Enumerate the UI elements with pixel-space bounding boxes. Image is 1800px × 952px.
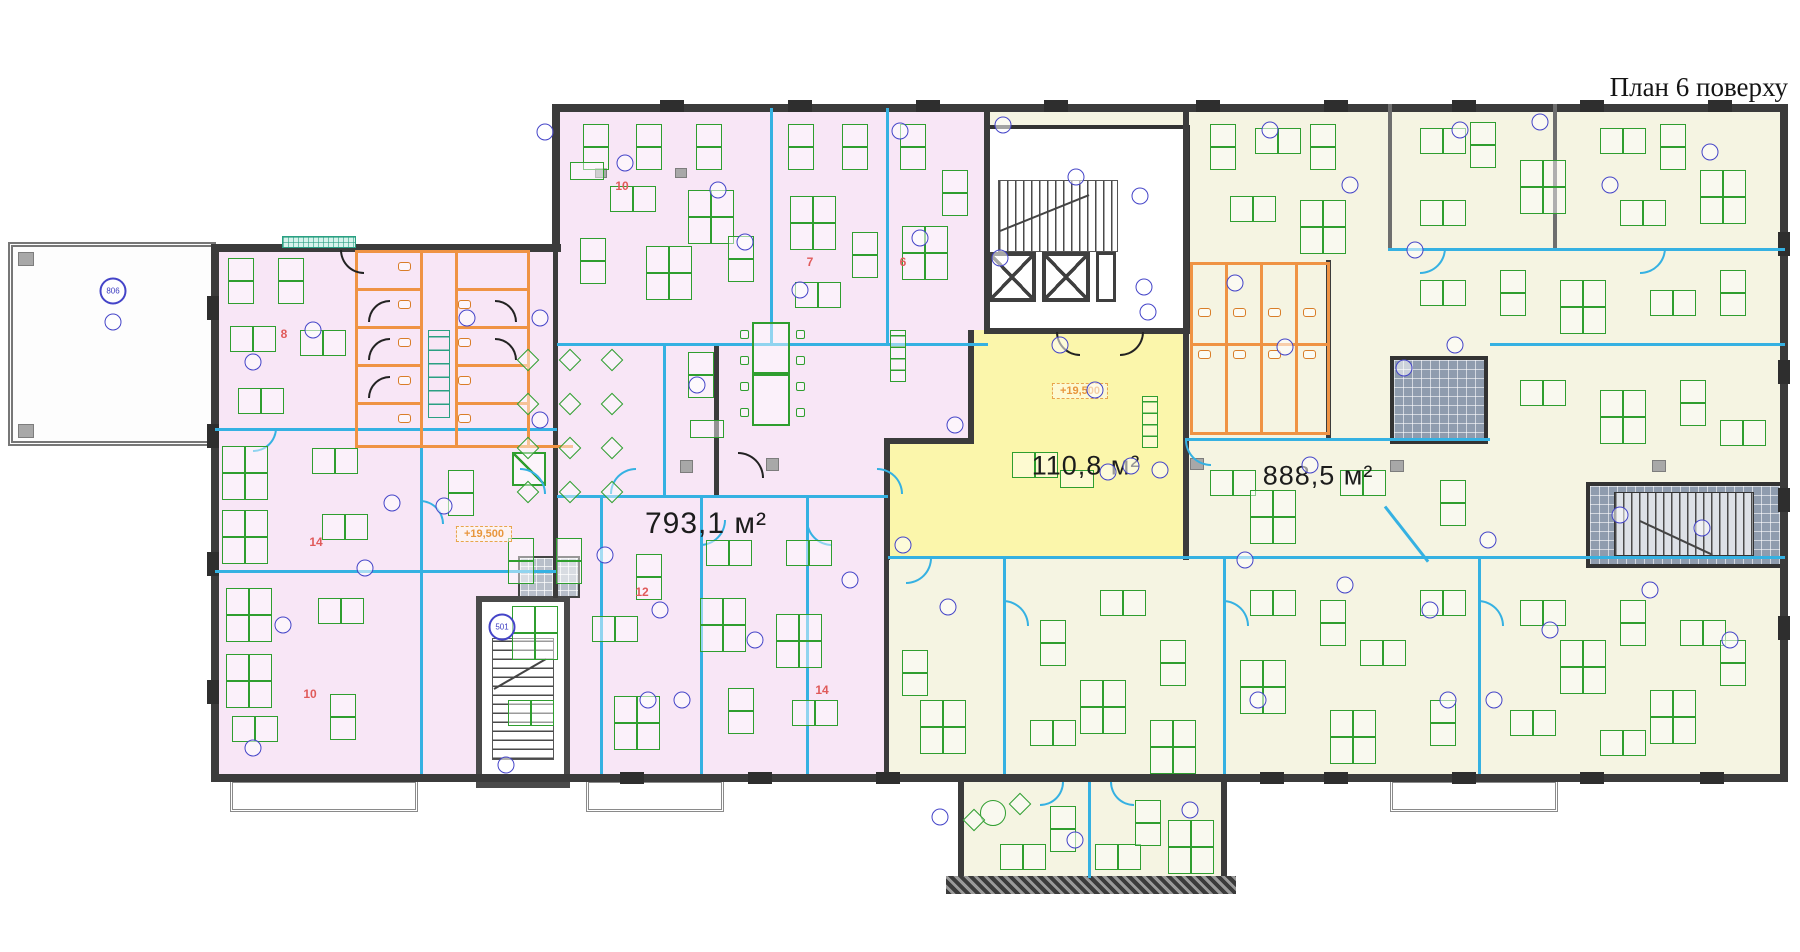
column <box>1044 100 1068 112</box>
column <box>1324 100 1348 112</box>
furniture-desk <box>1510 710 1556 736</box>
terrace <box>8 242 216 446</box>
partition <box>663 343 666 495</box>
room-id-marker <box>640 692 657 709</box>
wall-segment <box>984 328 1190 334</box>
sanitary-wall <box>355 364 420 367</box>
furniture-desk <box>330 694 356 740</box>
room-id-marker <box>597 547 614 564</box>
furniture-desk <box>1700 170 1746 224</box>
furniture-desk <box>1230 196 1276 222</box>
stair-treads <box>998 180 1118 252</box>
room-id-marker <box>1602 177 1619 194</box>
furniture-desk <box>1000 844 1046 870</box>
furniture-desk <box>232 716 278 742</box>
column <box>1390 460 1404 472</box>
partition <box>1478 556 1481 774</box>
furniture-desk <box>1310 124 1336 170</box>
room-id-marker <box>940 599 957 616</box>
partition <box>886 108 889 343</box>
room-id-marker <box>1452 122 1469 139</box>
partition <box>1003 556 1006 774</box>
column <box>1700 772 1724 784</box>
toilet-fixture <box>1198 308 1211 317</box>
furniture-desk <box>1680 380 1706 426</box>
room-id-marker <box>1100 464 1117 481</box>
room-id-marker <box>1337 577 1354 594</box>
room-id-marker <box>1342 177 1359 194</box>
furniture-desk <box>512 606 558 660</box>
room-id-marker <box>357 560 374 577</box>
furniture-desk <box>1500 270 1526 316</box>
furniture-desk <box>1150 720 1196 774</box>
room-id-marker <box>1694 520 1711 537</box>
sanitary-wall <box>1225 346 1228 435</box>
column <box>1452 772 1476 784</box>
floor-plan-canvas: План 6 поверху 793,1 м²110,8 м²888,5 м²+… <box>0 0 1800 952</box>
column <box>1652 460 1666 472</box>
room-id-marker <box>498 757 515 774</box>
room-id-marker: 806 <box>100 278 127 305</box>
furniture-desk <box>792 700 838 726</box>
furniture-desk <box>776 614 822 668</box>
furniture-desk <box>230 326 276 352</box>
room-id-marker <box>674 692 691 709</box>
room-id-marker <box>995 117 1012 134</box>
furniture-desk <box>556 538 582 584</box>
column <box>18 424 34 438</box>
room-id-marker <box>245 354 262 371</box>
entrance-porch <box>586 780 724 812</box>
toilet-fixture <box>458 338 471 347</box>
furniture-desk <box>706 540 752 566</box>
partition <box>1185 438 1490 441</box>
sanitary-wall <box>1260 346 1263 435</box>
room-id-marker <box>1262 122 1279 139</box>
furniture-desk <box>1168 820 1214 874</box>
room-id-marker <box>652 602 669 619</box>
area-label: 793,1 м² <box>645 507 767 541</box>
wall-segment <box>1183 108 1189 560</box>
furniture-chair <box>740 382 749 391</box>
furniture-desk <box>920 700 966 754</box>
furniture-desk <box>788 124 814 170</box>
stair-treads <box>1614 492 1754 556</box>
room-id-marker <box>1422 602 1439 619</box>
room-id-marker <box>1067 832 1084 849</box>
annex-end-wall <box>946 876 1236 894</box>
wc-cabinet <box>428 330 450 418</box>
partition <box>1088 782 1091 878</box>
column <box>1778 360 1790 384</box>
furniture-chair <box>796 382 805 391</box>
sanitary-wall <box>455 288 527 291</box>
room-id-marker <box>1440 692 1457 709</box>
furniture-desk <box>1560 640 1606 694</box>
room-id-marker <box>892 123 909 140</box>
elevation-mark: +19,500 <box>456 526 512 542</box>
sanitary-wall <box>355 445 573 448</box>
room-id-marker <box>275 617 292 634</box>
room-number: 14 <box>815 683 828 697</box>
room-number: 7 <box>807 255 814 269</box>
furniture-desk <box>1600 390 1646 444</box>
room-id-marker <box>384 495 401 512</box>
furniture-desk <box>902 650 928 696</box>
room-id-marker <box>1132 188 1149 205</box>
furniture-desk <box>1420 280 1466 306</box>
column <box>680 460 693 473</box>
furniture-desk <box>580 238 606 284</box>
room-number: 6 <box>900 255 907 269</box>
room-id-marker <box>1447 337 1464 354</box>
wall-segment <box>552 104 560 252</box>
toilet-fixture <box>398 300 411 309</box>
column <box>1196 100 1220 112</box>
furniture-chair <box>740 330 749 339</box>
furniture-desk <box>226 588 272 642</box>
elevator-shaft <box>1042 252 1090 302</box>
sanitary-wall <box>355 250 358 448</box>
room-id-marker <box>1486 692 1503 709</box>
toilet-fixture <box>398 376 411 385</box>
room-id-marker <box>1396 360 1413 377</box>
partition <box>888 556 1785 559</box>
furniture-desk <box>318 598 364 624</box>
toilet-fixture <box>1233 308 1246 317</box>
room-number: 10 <box>615 179 628 193</box>
room-id-marker <box>842 572 859 589</box>
room-id-marker <box>1087 382 1104 399</box>
room-id-marker <box>747 632 764 649</box>
room-id-marker <box>1612 507 1629 524</box>
room-id-marker <box>1722 632 1739 649</box>
room-id-marker <box>1237 552 1254 569</box>
column <box>620 772 644 784</box>
column <box>788 100 812 112</box>
furniture-desk <box>1720 420 1766 446</box>
room-id-marker <box>1302 457 1319 474</box>
furniture-desk <box>790 196 836 250</box>
furniture-cabinet <box>1142 396 1158 448</box>
sanitary-wall <box>355 288 420 291</box>
furniture-desk <box>1620 600 1646 646</box>
window-strip <box>282 236 356 248</box>
toilet-fixture <box>398 338 411 347</box>
column <box>18 252 34 266</box>
furniture-desk <box>238 388 284 414</box>
room-number: 10 <box>303 687 316 701</box>
room-id-marker <box>1136 279 1153 296</box>
column <box>1778 232 1790 256</box>
room-id-marker <box>1532 114 1549 131</box>
furniture-desk <box>1470 122 1496 168</box>
wall-segment <box>884 438 890 560</box>
column <box>660 100 684 112</box>
column <box>748 772 772 784</box>
entrance-porch <box>230 780 418 812</box>
wall-segment <box>1388 104 1392 250</box>
wall-segment <box>884 556 889 778</box>
room-id-marker <box>617 155 634 172</box>
column <box>1778 616 1790 640</box>
sanitary-wall <box>355 326 420 329</box>
room-id-marker <box>1542 622 1559 639</box>
furniture-desk <box>1520 600 1566 626</box>
column <box>1324 772 1348 784</box>
column <box>1708 100 1732 112</box>
wall-segment <box>884 438 974 444</box>
entrance-porch <box>1390 780 1558 812</box>
room-id-marker <box>1182 802 1199 819</box>
furniture-conference-table <box>752 322 790 426</box>
column <box>916 100 940 112</box>
furniture-desk <box>228 258 254 304</box>
furniture-desk <box>278 258 304 304</box>
furniture-desk <box>222 446 268 500</box>
room-id-marker <box>532 310 549 327</box>
toilet-fixture <box>1233 350 1246 359</box>
partition <box>420 428 423 774</box>
furniture-desk <box>1210 124 1236 170</box>
room-id-marker <box>792 282 809 299</box>
room-id-marker: 501 <box>489 614 516 641</box>
room-id-marker <box>992 250 1009 267</box>
sanitary-wall <box>1295 346 1298 435</box>
small-shaft <box>1096 252 1116 302</box>
furniture-desk <box>592 616 638 642</box>
room-id-marker <box>245 740 262 757</box>
furniture-chair <box>740 408 749 417</box>
toilet-fixture <box>458 376 471 385</box>
furniture-desk <box>690 420 724 438</box>
furniture-round-table <box>980 800 1006 826</box>
furniture-desk <box>508 538 534 584</box>
furniture-desk <box>222 510 268 564</box>
furniture-desk <box>728 688 754 734</box>
partition <box>1490 343 1785 346</box>
sanitary-wall <box>355 250 530 253</box>
partition <box>1388 248 1785 251</box>
furniture-desk <box>842 124 868 170</box>
column <box>1778 488 1790 512</box>
furniture-desk <box>1095 844 1141 870</box>
room-id-marker <box>932 809 949 826</box>
room-id-marker <box>436 498 453 515</box>
room-id-marker <box>912 230 929 247</box>
furniture-desk <box>1100 590 1146 616</box>
column <box>1260 772 1284 784</box>
furniture-desk <box>942 170 968 216</box>
furniture-chair <box>796 330 805 339</box>
furniture-desk <box>786 540 832 566</box>
furniture-desk <box>570 162 604 180</box>
partition <box>770 108 773 343</box>
furniture-desk <box>1600 128 1646 154</box>
column <box>876 772 900 784</box>
room-id-marker <box>1642 582 1659 599</box>
toilet-fixture <box>1268 308 1281 317</box>
furniture-desk <box>1300 200 1346 254</box>
furniture-desk <box>312 448 358 474</box>
room-id-marker <box>1277 339 1294 356</box>
room-id-marker <box>1480 532 1497 549</box>
toilet-fixture <box>458 414 471 423</box>
room-id-marker <box>737 234 754 251</box>
column <box>207 296 219 320</box>
furniture-desk <box>1080 680 1126 734</box>
room-id-marker <box>1702 144 1719 161</box>
sanitary-wall <box>1260 262 1263 343</box>
room-id-marker <box>1068 169 1085 186</box>
room-id-marker <box>1250 692 1267 709</box>
room-id-marker <box>1052 337 1069 354</box>
furniture-desk <box>1420 200 1466 226</box>
furniture-desk <box>1440 480 1466 526</box>
furniture-desk <box>1320 600 1346 646</box>
furniture-desk <box>1560 280 1606 334</box>
room-id-marker <box>947 417 964 434</box>
furniture-desk <box>508 700 554 726</box>
furniture-desk <box>1135 800 1161 846</box>
sanitary-wall <box>1327 262 1330 435</box>
room-id-marker <box>105 314 122 331</box>
room-number: 14 <box>309 535 322 549</box>
room-id-marker <box>689 377 706 394</box>
room-id-marker <box>895 537 912 554</box>
furniture-chair <box>796 356 805 365</box>
toilet-fixture <box>1198 350 1211 359</box>
partition <box>215 570 557 573</box>
furniture-chair <box>740 356 749 365</box>
furniture-desk <box>1160 640 1186 686</box>
toilet-fixture <box>1303 308 1316 317</box>
furniture-desk <box>1250 490 1296 544</box>
plan-title: План 6 поверху <box>1610 72 1788 103</box>
furniture-chair <box>796 408 805 417</box>
toilet-fixture <box>398 414 411 423</box>
toilet-fixture <box>458 300 471 309</box>
room-id-marker <box>1140 304 1157 321</box>
furniture-desk <box>226 654 272 708</box>
furniture-desk <box>1650 690 1696 744</box>
furniture-desk <box>322 514 368 540</box>
column <box>1580 772 1604 784</box>
sanitary-wall <box>420 253 423 445</box>
furniture-desk <box>1520 160 1566 214</box>
wall-segment <box>1221 778 1227 882</box>
room-id-marker <box>1227 275 1244 292</box>
wall-segment <box>215 774 1788 782</box>
furniture-desk <box>1360 640 1406 666</box>
wall-segment <box>984 108 990 334</box>
sanitary-wall <box>1295 262 1298 343</box>
furniture-desk <box>1330 710 1376 764</box>
furniture-cabinet <box>890 330 906 382</box>
furniture-desk <box>1520 380 1566 406</box>
sanitary-wall <box>1225 262 1228 343</box>
toilet-fixture <box>398 262 411 271</box>
toilet-fixture <box>1303 350 1316 359</box>
sanitary-wall <box>355 402 420 405</box>
partition <box>1223 556 1226 774</box>
furniture-desk <box>1600 730 1646 756</box>
room-id-marker <box>1123 458 1140 475</box>
wall-segment <box>958 778 964 882</box>
room-id-marker <box>1152 462 1169 479</box>
furniture-desk <box>1650 290 1696 316</box>
column <box>207 680 219 704</box>
furniture-desk <box>700 598 746 652</box>
wall-segment <box>1780 104 1788 782</box>
room-id-marker <box>532 412 549 429</box>
wall-segment <box>968 330 974 440</box>
furniture-desk <box>1250 590 1296 616</box>
room-id-marker <box>537 124 554 141</box>
room-id-marker <box>305 322 322 339</box>
room-number: 8 <box>281 327 288 341</box>
column <box>675 168 687 178</box>
furniture-desk <box>696 124 722 170</box>
furniture-desk <box>1030 720 1076 746</box>
room-id-marker <box>1407 242 1424 259</box>
room-id-marker <box>710 182 727 199</box>
room-number: 12 <box>635 585 648 599</box>
furniture-desk <box>1720 270 1746 316</box>
furniture-desk <box>1040 620 1066 666</box>
furniture-desk <box>852 232 878 278</box>
sanitary-wall <box>1190 262 1193 435</box>
column <box>1452 100 1476 112</box>
furniture-desk <box>1660 124 1686 170</box>
furniture-desk <box>1620 200 1666 226</box>
sanitary-wall <box>455 364 527 367</box>
furniture-desk <box>646 246 692 300</box>
column <box>766 458 779 471</box>
furniture-desk <box>636 124 662 170</box>
room-id-marker <box>459 310 476 327</box>
column <box>1580 100 1604 112</box>
